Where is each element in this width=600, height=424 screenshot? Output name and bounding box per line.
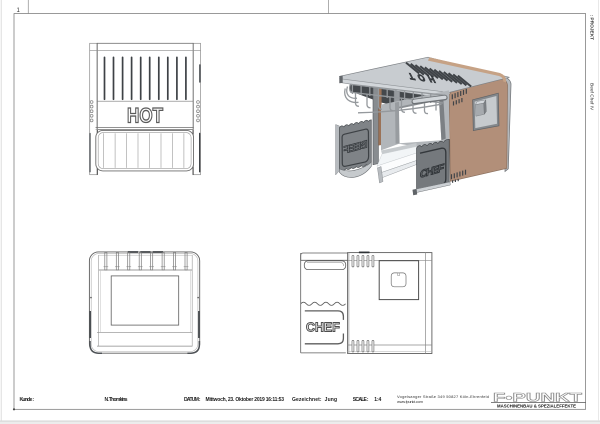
svg-text:N. Thomkins: N. Thomkins: [105, 397, 128, 403]
svg-text:Kunde :: Kunde :: [20, 397, 35, 403]
svg-text:HOT: HOT: [127, 104, 163, 127]
svg-text:www.fpunkt.com: www.fpunkt.com: [397, 399, 424, 404]
svg-text:1:4: 1:4: [374, 397, 381, 403]
svg-text:: PROJEKT: : PROJEKT: [589, 15, 595, 41]
svg-text:F•PUNKT: F•PUNKT: [493, 390, 583, 404]
svg-text:Vogelsanger Straße 349 50827 K: Vogelsanger Straße 349 50827 Köln-Ehrenf…: [397, 394, 489, 399]
svg-text:Gezeichnet: Jung: Gezeichnet: Jung: [292, 397, 337, 403]
svg-text:MASCHINENBAU & SPEZIALEFFEKTE: MASCHINENBAU & SPEZIALEFFEKTE: [497, 403, 576, 408]
svg-text:CHEF: CHEF: [306, 319, 340, 334]
svg-text:SCALE :: SCALE :: [353, 397, 369, 403]
svg-text:DATUM :: DATUM :: [184, 397, 201, 403]
svg-text:Beef Chef IV: Beef Chef IV: [589, 83, 595, 111]
svg-text:Mittwoch, 23. Oktober 2019 16:: Mittwoch, 23. Oktober 2019 16:11:53: [206, 397, 285, 403]
